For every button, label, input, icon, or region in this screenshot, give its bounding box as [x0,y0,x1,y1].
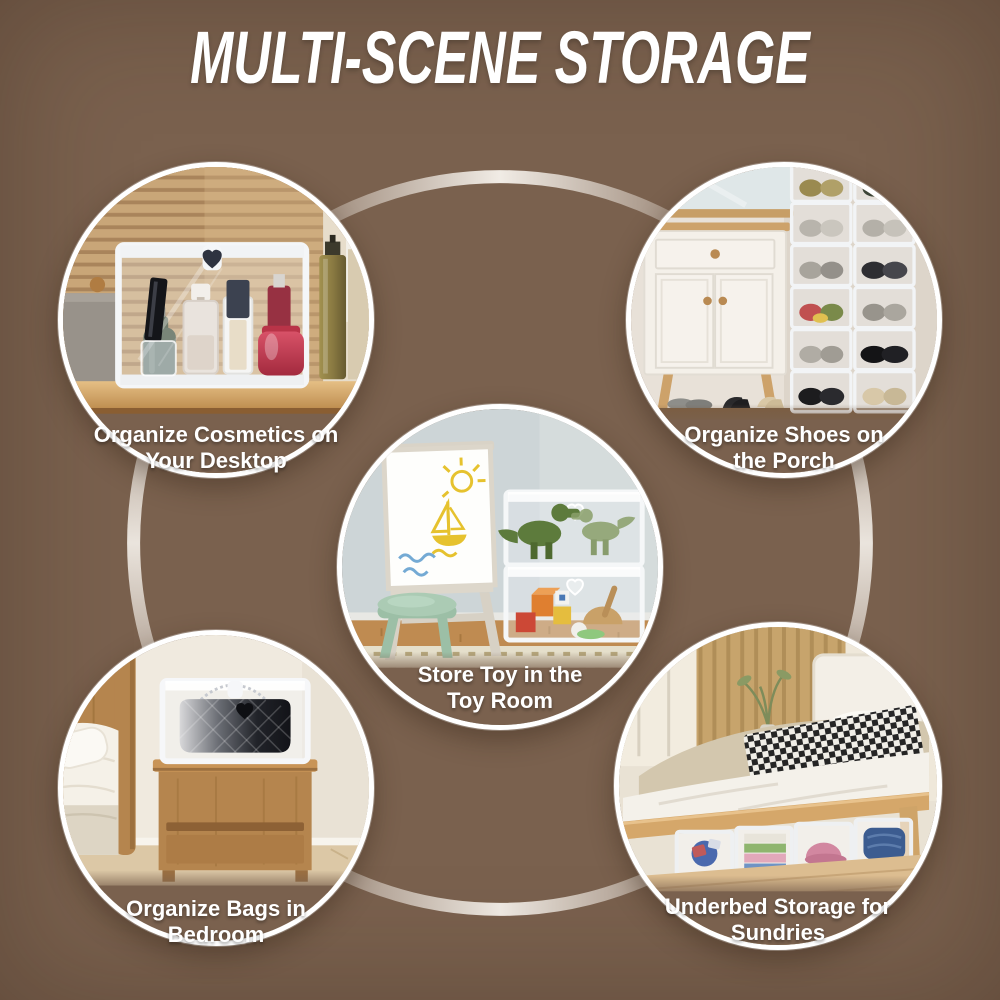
caption-bags: Organize Bags in Bedroom [0,896,437,948]
marketing-graphic: MULTI-SCENE STORAGE [0,0,1000,1000]
wooden-bed [63,646,136,854]
plant-vase [656,167,680,205]
gold-spray-bottle [319,235,346,379]
scene-shoes: Organize Shoes on the Porch [626,162,942,478]
beige-bottle [348,249,369,379]
scene-cosmetics: Organize Cosmetics on Your Desktop [58,162,374,478]
scene-bags: Organize Bags in Bedroom [58,630,374,946]
wall-mirror [648,167,793,218]
foundation-bottle [224,280,253,374]
scene-underbed: Underbed Storage for Sundries [614,622,942,950]
clear-bag-box [162,673,307,776]
toy-storage-boxes [498,492,642,640]
nightstand [153,759,317,881]
gray-gift-box [63,277,118,395]
caption-underbed: Underbed Storage for Sundries [548,894,1000,946]
clear-storage-box [118,245,305,385]
